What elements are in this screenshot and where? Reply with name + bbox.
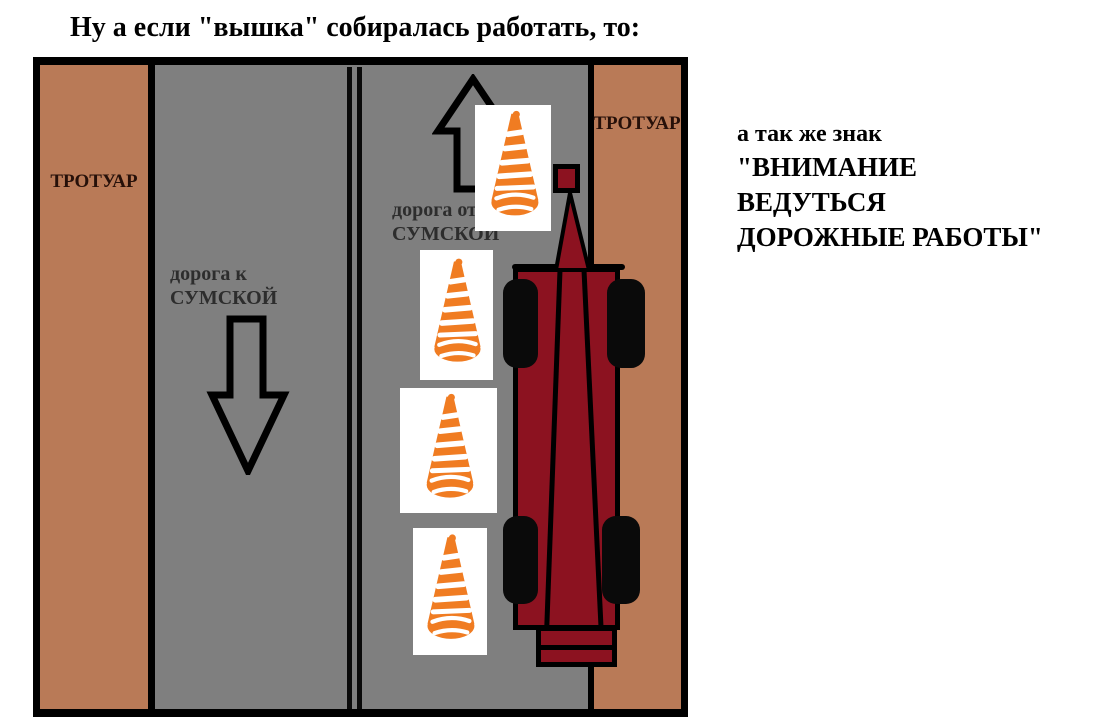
side-note: а так же знак "ВНИМАНИЕ ВЕДУТЬСЯ ДОРОЖНЫ… bbox=[737, 118, 1043, 255]
truck-wheel-front-left bbox=[503, 279, 538, 368]
truck-wheel-rear-left bbox=[503, 516, 538, 604]
traffic-cone-icon bbox=[420, 250, 493, 380]
lane-to-line2: СУМСКОЙ bbox=[170, 286, 277, 310]
truck-wheel-front-right bbox=[607, 279, 645, 368]
arrow-down-icon bbox=[205, 315, 290, 475]
side-note-line-2: "ВНИМАНИЕ bbox=[737, 150, 1043, 185]
road-centerline-right-stripe bbox=[357, 67, 362, 709]
truck-wheel-rear-right bbox=[602, 516, 640, 604]
aerial-lift-truck bbox=[495, 160, 655, 715]
paint-drawing-canvas: Ну а если "вышка" собиралась работать, т… bbox=[0, 0, 1104, 723]
truck-cab-divider bbox=[536, 645, 617, 650]
lane-label-to-sumska: дорога к СУМСКОЙ bbox=[170, 262, 277, 310]
left-sidewalk-label: ТРОТУАР bbox=[40, 171, 148, 193]
right-sidewalk-label: ТРОТУАР bbox=[592, 113, 682, 135]
side-note-line-3: ВЕДУТЬСЯ bbox=[737, 185, 1043, 220]
traffic-cone-icon bbox=[413, 528, 487, 655]
page-title: Ну а если "вышка" собиралась работать, т… bbox=[70, 12, 640, 44]
lane-to-line1: дорога к bbox=[170, 262, 277, 286]
left-sidewalk bbox=[40, 65, 148, 709]
road-centerline-left-stripe bbox=[347, 67, 352, 709]
traffic-cone-icon bbox=[400, 388, 497, 513]
side-note-line-1: а так же знак bbox=[737, 118, 1043, 150]
side-note-line-4: ДОРОЖНЫЕ РАБОТЫ" bbox=[737, 220, 1043, 255]
